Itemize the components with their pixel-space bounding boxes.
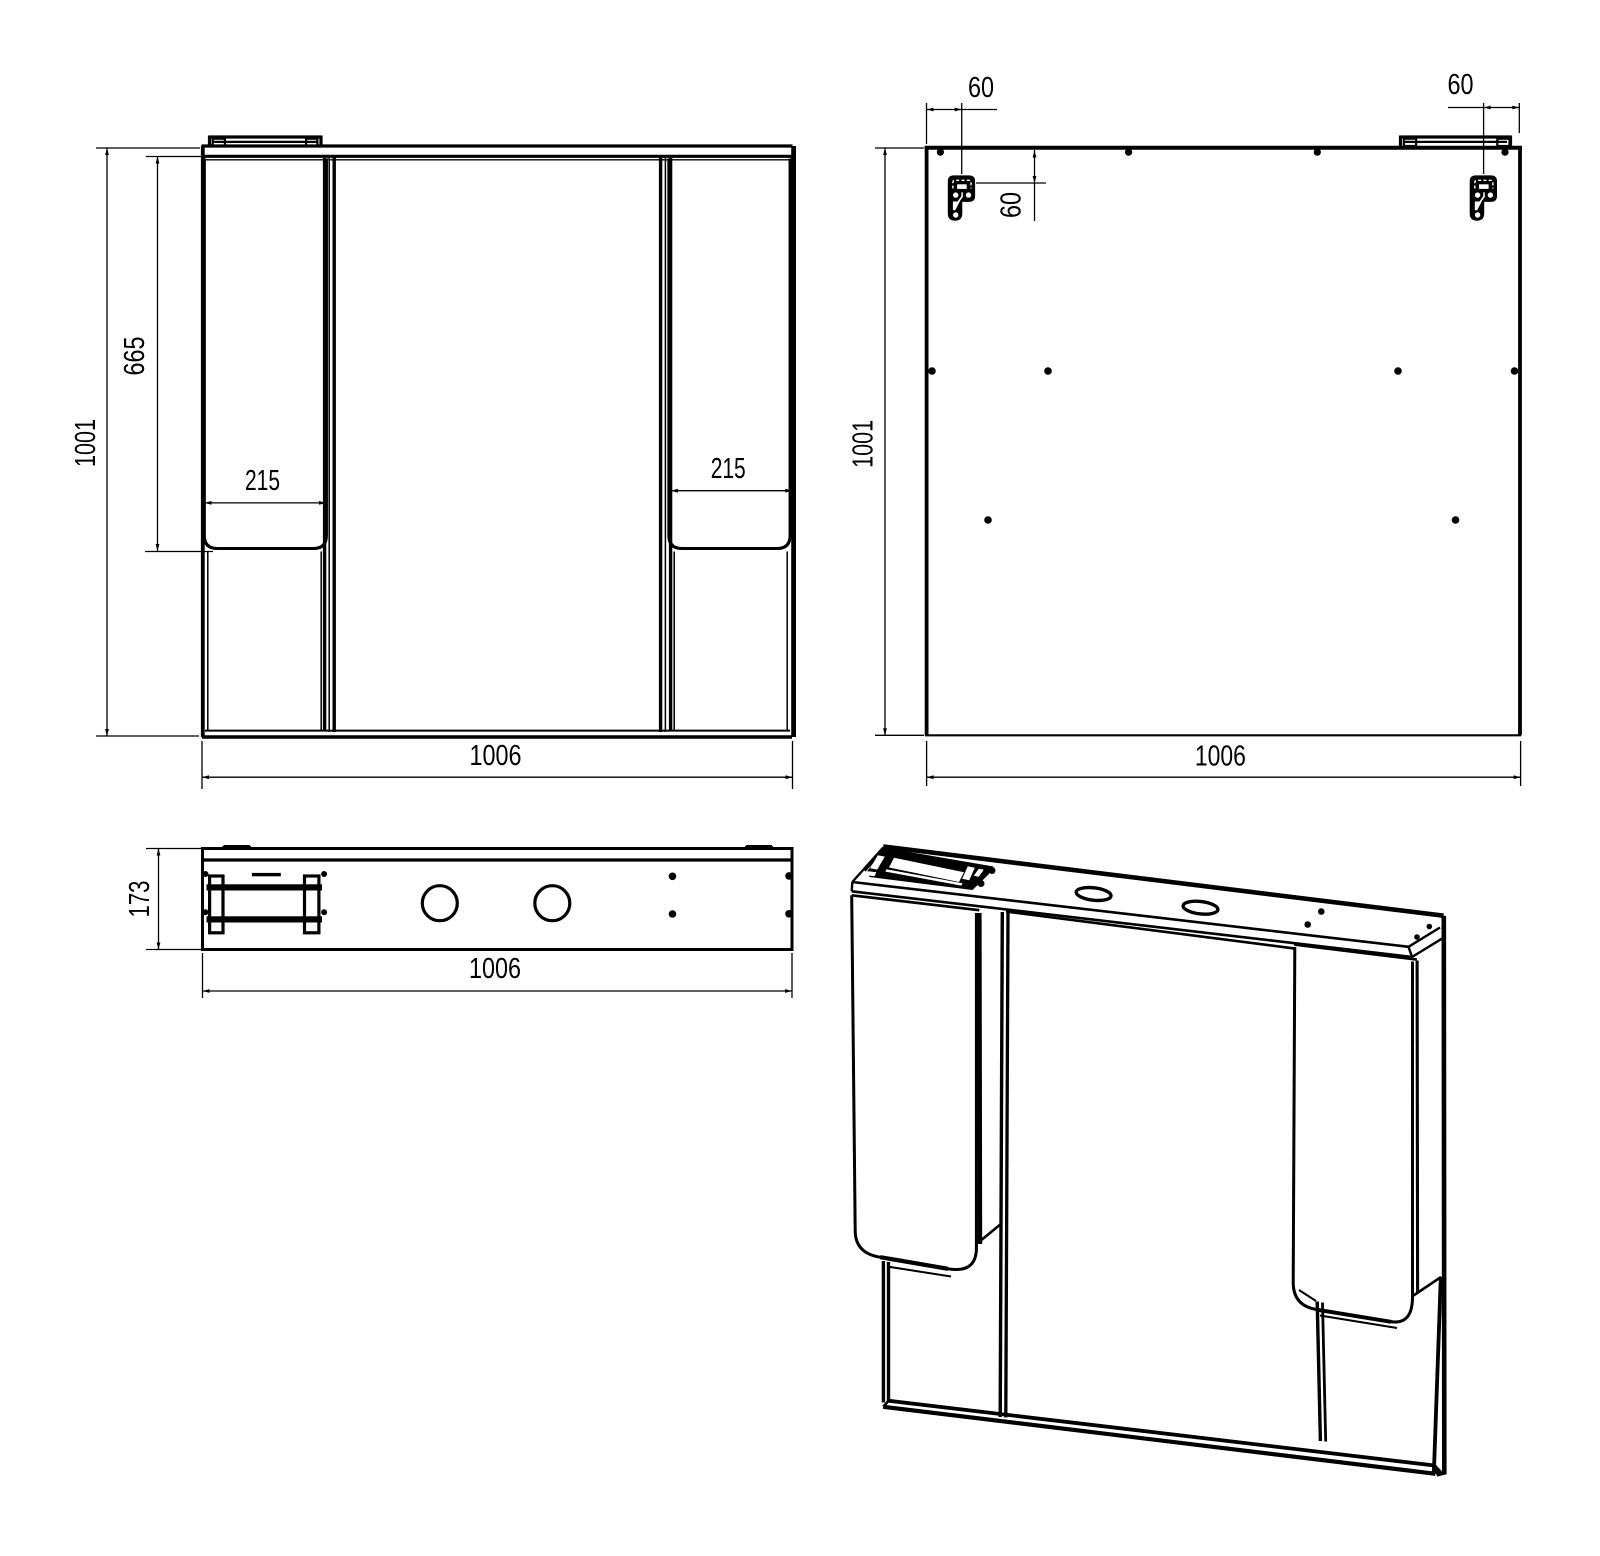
svg-text:1006: 1006 — [1195, 740, 1246, 772]
svg-text:60: 60 — [1448, 69, 1474, 101]
svg-text:215: 215 — [711, 453, 746, 485]
svg-text:1001: 1001 — [847, 420, 879, 468]
svg-text:1001: 1001 — [70, 419, 102, 467]
svg-text:60: 60 — [968, 72, 994, 104]
svg-text:665: 665 — [119, 337, 151, 376]
svg-text:1006: 1006 — [469, 953, 521, 985]
svg-text:215: 215 — [245, 465, 280, 497]
svg-text:1006: 1006 — [470, 740, 522, 772]
svg-text:60: 60 — [996, 192, 1028, 218]
svg-text:173: 173 — [124, 881, 156, 918]
